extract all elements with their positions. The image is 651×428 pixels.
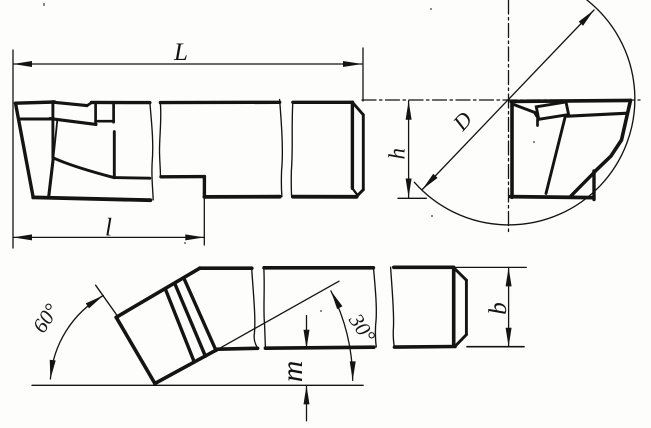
svg-text:D: D (447, 107, 477, 136)
svg-text:h: h (385, 148, 410, 160)
svg-text:m: m (276, 361, 309, 383)
svg-text:b: b (485, 302, 512, 315)
svg-text:L: L (173, 39, 188, 66)
svg-text:l: l (105, 215, 112, 242)
svg-text:60°: 60° (28, 299, 64, 337)
